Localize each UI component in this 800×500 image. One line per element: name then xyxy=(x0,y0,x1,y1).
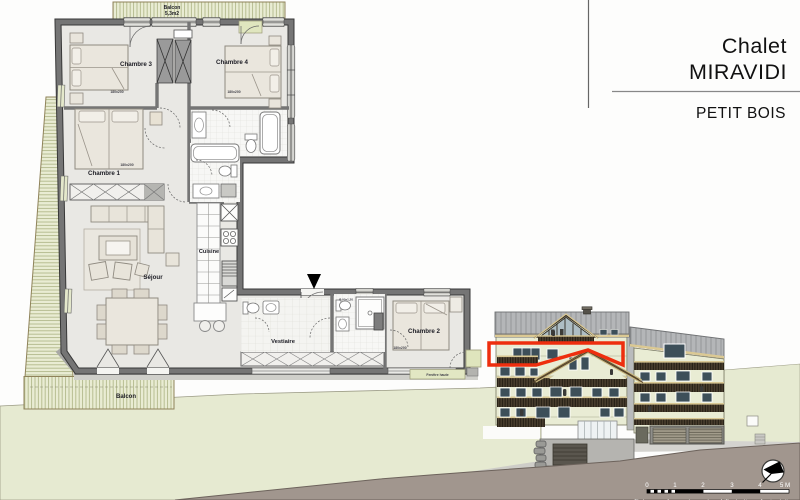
svg-text:Chambre 4: Chambre 4 xyxy=(216,59,249,66)
svg-text:5 M: 5 M xyxy=(780,482,790,489)
svg-text:4: 4 xyxy=(758,482,762,489)
svg-text:Chambre 2: Chambre 2 xyxy=(408,328,441,335)
svg-text:180x200: 180x200 xyxy=(227,90,240,94)
svg-text:Chambre 1: Chambre 1 xyxy=(88,170,121,177)
svg-text:2: 2 xyxy=(701,482,705,489)
svg-text:1: 1 xyxy=(673,482,677,489)
svg-text:180x200: 180x200 xyxy=(110,90,123,94)
svg-text:Balcon: Balcon xyxy=(116,394,136,400)
svg-text:Chalet: Chalet xyxy=(722,34,787,58)
svg-text:PETIT BOIS: PETIT BOIS xyxy=(696,105,786,122)
svg-text:3: 3 xyxy=(730,482,734,489)
svg-text:Ø 90x1,20: Ø 90x1,20 xyxy=(339,298,353,302)
svg-text:Séjour: Séjour xyxy=(143,274,163,281)
svg-text:5,3m2: 5,3m2 xyxy=(165,11,179,17)
svg-text:Vestiaire: Vestiaire xyxy=(271,339,296,345)
svg-text:0: 0 xyxy=(645,482,649,489)
svg-text:Fenêtre haute: Fenêtre haute xyxy=(426,373,448,377)
svg-text:Cuisine: Cuisine xyxy=(199,249,219,255)
svg-text:Chambre 3: Chambre 3 xyxy=(120,61,153,68)
svg-text:MIRAVIDI: MIRAVIDI xyxy=(689,60,787,84)
svg-text:180x200: 180x200 xyxy=(393,346,406,350)
svg-text:180x200: 180x200 xyxy=(120,163,133,167)
